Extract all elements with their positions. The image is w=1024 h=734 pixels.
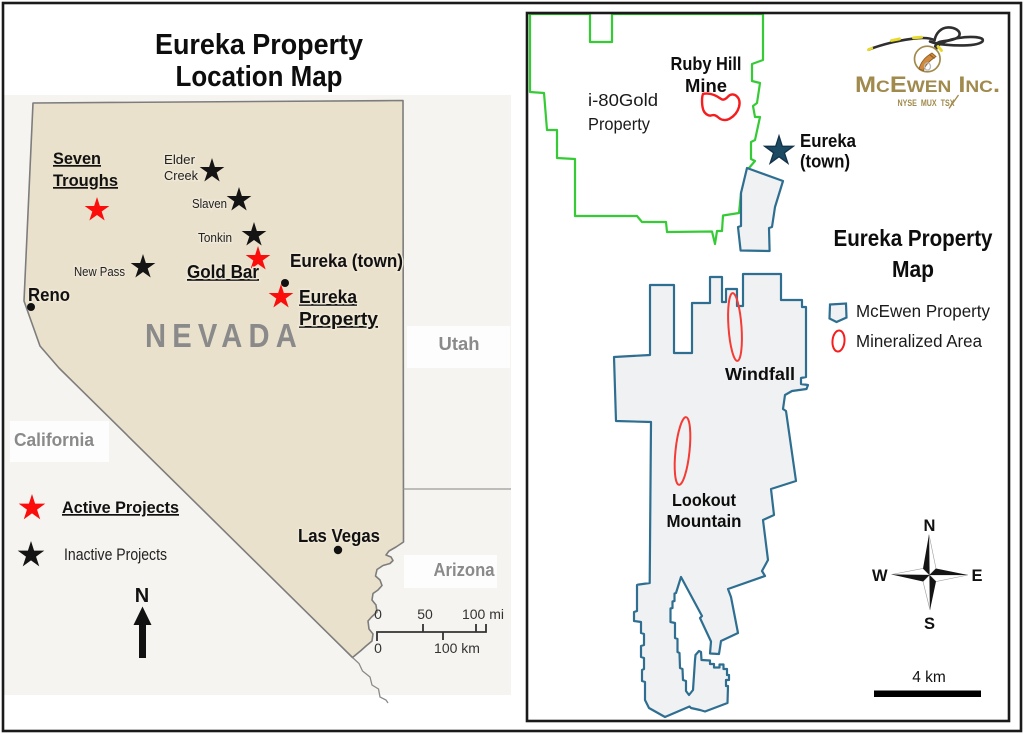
svg-text:Inactive Projects: Inactive Projects — [64, 546, 167, 564]
svg-text:Creek: Creek — [164, 168, 198, 183]
svg-text:Ruby Hill: Ruby Hill — [671, 54, 742, 74]
svg-text:Tonkin: Tonkin — [198, 230, 232, 245]
svg-text:Reno: Reno — [28, 285, 70, 305]
svg-text:California: California — [14, 430, 95, 450]
svg-text:NEVADA: NEVADA — [145, 317, 303, 354]
svg-text:Seven: Seven — [53, 149, 101, 168]
svg-text:Eureka (town): Eureka (town) — [290, 251, 403, 271]
svg-text:0: 0 — [374, 640, 382, 656]
svg-text:N: N — [135, 585, 149, 607]
svg-text:McEwen Property: McEwen Property — [856, 301, 990, 321]
svg-text:New Pass: New Pass — [74, 264, 125, 279]
svg-text:Gold Bar: Gold Bar — [187, 262, 259, 282]
svg-text:Mountain: Mountain — [667, 511, 742, 531]
svg-text:0: 0 — [374, 606, 382, 622]
svg-text:Active Projects: Active Projects — [62, 498, 179, 517]
svg-text:S: S — [924, 615, 935, 633]
svg-text:i-80Gold: i-80Gold — [588, 90, 658, 110]
svg-text:Eureka Property: Eureka Property — [834, 225, 993, 251]
svg-text:Arizona: Arizona — [434, 560, 496, 580]
svg-text:Mineralized Area: Mineralized Area — [856, 331, 982, 351]
svg-text:E: E — [972, 567, 983, 585]
svg-text:NYSE MUX TSX: NYSE MUX TSX — [898, 98, 955, 109]
svg-text:Lookout: Lookout — [672, 490, 736, 510]
svg-text:N: N — [924, 517, 936, 535]
svg-text:Eureka: Eureka — [800, 131, 857, 151]
svg-text:Property: Property — [299, 309, 378, 329]
svg-text:100 mi: 100 mi — [462, 606, 504, 622]
svg-text:50: 50 — [417, 606, 433, 622]
svg-text:Map: Map — [892, 256, 934, 282]
svg-text:Location Map: Location Map — [176, 61, 343, 93]
svg-text:Utah: Utah — [439, 334, 480, 354]
svg-text:Slaven: Slaven — [192, 196, 227, 211]
svg-text:4 km: 4 km — [912, 669, 946, 686]
svg-text:Eureka Property: Eureka Property — [155, 29, 363, 61]
svg-text:(town): (town) — [800, 152, 850, 172]
svg-text:Las Vegas: Las Vegas — [298, 526, 380, 546]
svg-text:100 km: 100 km — [434, 640, 480, 656]
svg-text:W: W — [872, 567, 888, 585]
svg-text:Troughs: Troughs — [53, 171, 118, 190]
svg-text:Eureka: Eureka — [299, 287, 358, 307]
svg-text:Elder: Elder — [164, 152, 196, 167]
svg-text:Property: Property — [588, 114, 650, 134]
svg-text:Windfall: Windfall — [725, 364, 795, 384]
